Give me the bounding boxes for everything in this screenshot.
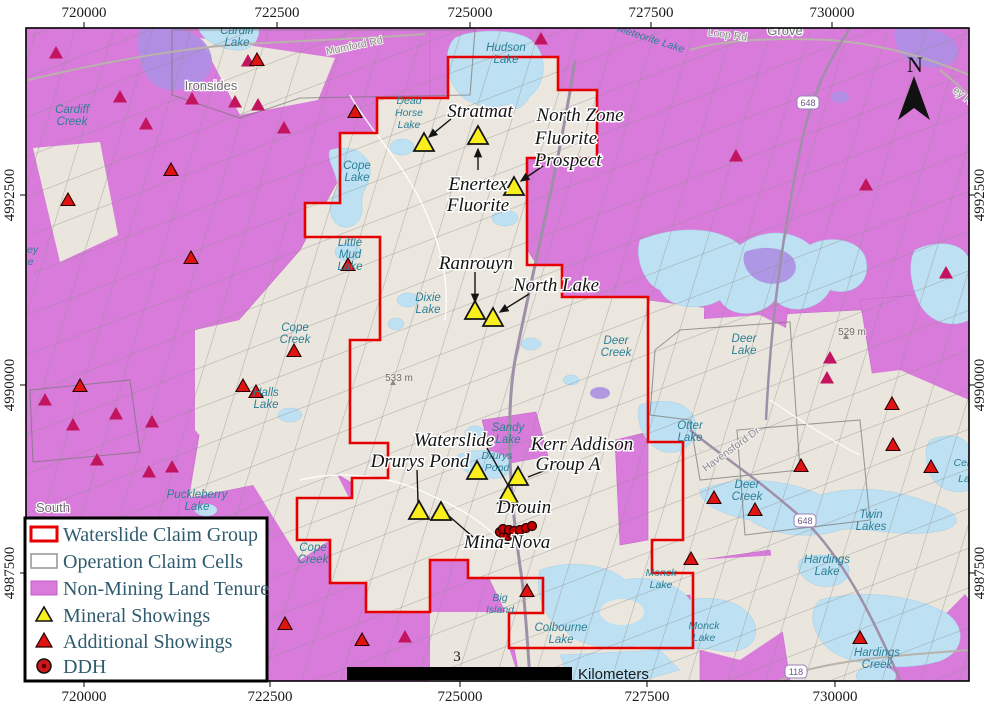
legend: Waterslide Claim Group Operation Claim C… xyxy=(25,518,269,681)
mina-nova-label: Mina-Nova xyxy=(463,532,551,553)
enertex-label: Enertex xyxy=(447,174,508,195)
axis-bottom-720000: 720000 xyxy=(62,689,107,705)
claim-map: 648 648 118 xyxy=(0,0,997,714)
kerr-addison-label: Kerr Addison xyxy=(530,434,634,455)
non-mining-swatch-icon xyxy=(31,581,57,595)
svg-text:Creek: Creek xyxy=(862,659,894,671)
hardings-creek-label: Hardings xyxy=(854,647,900,659)
svg-text:Lake: Lake xyxy=(416,304,441,316)
svg-text:Lake: Lake xyxy=(549,634,574,646)
cope-creek-label-2: Cope xyxy=(299,542,327,554)
svg-text:Fluorite: Fluorite xyxy=(534,128,597,149)
svg-text:Creek: Creek xyxy=(732,491,764,503)
svg-text:Lake: Lake xyxy=(496,434,521,446)
axis-bottom-730000: 730000 xyxy=(813,689,858,705)
halls-lake-label: Halls xyxy=(253,387,279,399)
shield-118-label: 118 xyxy=(789,667,803,677)
cardiff-creek-label: Cardiff xyxy=(55,104,91,116)
svg-text:Horse: Horse xyxy=(395,107,423,119)
sey-lake-partial-label: sey xyxy=(22,244,39,256)
drurys-pond-label: Drurys Pond xyxy=(370,451,470,472)
axis-left-4990000: 4990000 xyxy=(2,359,18,412)
svg-text:Prospect: Prospect xyxy=(534,150,603,171)
svg-text:Lake: Lake xyxy=(494,54,519,66)
big-island-label: Big xyxy=(492,592,507,604)
svg-text:Lake: Lake xyxy=(398,119,421,131)
svg-text:Creek: Creek xyxy=(601,347,633,359)
dead-horse-lake-label: Dead xyxy=(396,95,422,107)
svg-text:Lake: Lake xyxy=(693,632,716,644)
waterslide-label: Waterslide xyxy=(414,430,495,451)
shield-648-label-2: 648 xyxy=(797,516,812,526)
south-label: South xyxy=(36,500,70,515)
axis-left-4992500: 4992500 xyxy=(2,169,18,222)
axis-left-4987500: 4987500 xyxy=(2,547,18,600)
claim-cells-swatch-icon xyxy=(31,554,57,568)
north-lake-label: North Lake xyxy=(512,275,599,296)
hudson-lake-label: Hudson xyxy=(486,42,526,54)
svg-text:Group A: Group A xyxy=(536,454,601,475)
legend-item-non-mining: Non-Mining Land Tenure xyxy=(31,578,269,600)
svg-text:Lake: Lake xyxy=(225,37,250,49)
legend-item-additional-showings: Additional Showings xyxy=(36,631,233,653)
svg-text:Lake: Lake xyxy=(338,261,363,273)
axis-top-725000: 725000 xyxy=(448,5,493,21)
svg-text:Lake: Lake xyxy=(678,432,703,444)
ironsides-label: Ironsides xyxy=(185,78,238,93)
axis-right-4987500: 4987500 xyxy=(972,547,988,600)
legend-label-claim-group: Waterslide Claim Group xyxy=(63,524,258,546)
stratmat-label: Stratmat xyxy=(447,101,513,122)
axis-top-727500: 727500 xyxy=(629,5,674,21)
legend-item-mineral-showings: Mineral Showings xyxy=(36,605,210,627)
legend-label-claim-cells: Operation Claim Cells xyxy=(63,551,243,573)
cardiff-lake-label: Cardiff xyxy=(220,25,256,37)
drurys-pond-lake-label: Drurys xyxy=(482,450,514,462)
claim-group-swatch-icon xyxy=(31,527,57,541)
svg-text:Lake: Lake xyxy=(650,579,673,591)
sandy-lake-label: Sandy xyxy=(492,422,526,434)
cope-lake-label: Cope xyxy=(343,160,371,172)
svg-text:Lake: Lake xyxy=(345,172,370,184)
elevation-529: 529 m xyxy=(838,327,866,338)
map-page: 648 648 118 xyxy=(0,0,997,714)
cope-creek-label: Cope xyxy=(281,322,309,334)
little-mud-lake-label: Little xyxy=(338,237,362,249)
svg-text:Lake: Lake xyxy=(732,345,757,357)
otter-lake-label: Otter xyxy=(677,420,704,432)
big-island-land xyxy=(600,599,644,625)
svg-text:Creek: Creek xyxy=(57,116,89,128)
drouin-label: Drouin xyxy=(496,497,551,518)
axis-bottom-727500: 727500 xyxy=(625,689,670,705)
svg-text:Lake: Lake xyxy=(815,566,840,578)
svg-text:Lake: Lake xyxy=(254,399,279,411)
axis-top-720000: 720000 xyxy=(62,5,107,21)
legend-label-non-mining: Non-Mining Land Tenure xyxy=(63,578,269,600)
svg-text:Creek: Creek xyxy=(298,554,330,566)
grove-label: Grove xyxy=(767,23,802,38)
deer-creek-label-2: Deer xyxy=(735,479,761,491)
axis-right-4990000: 4990000 xyxy=(972,359,988,412)
elevation-533: 533 m xyxy=(385,373,413,384)
shield-648-label: 648 xyxy=(800,98,815,108)
dixie-lake-label: Dixie xyxy=(415,292,441,304)
svg-text:Creek: Creek xyxy=(280,334,312,346)
monck-lake-label-2: Monck xyxy=(689,620,721,632)
axis-bottom-722500: 722500 xyxy=(248,689,293,705)
north-zone-label: North Zone xyxy=(535,105,623,126)
ranrouyn-label: Ranrouyn xyxy=(438,253,513,274)
svg-text:Lake: Lake xyxy=(185,501,210,513)
svg-text:Mud: Mud xyxy=(339,249,362,261)
scale-distance-label: 3 xyxy=(453,649,461,665)
axis-top-730000: 730000 xyxy=(810,5,855,21)
hardings-lake-label: Hardings xyxy=(804,554,850,566)
svg-text:Island: Island xyxy=(486,604,515,616)
svg-text:Pond: Pond xyxy=(485,462,511,474)
north-arrow-label: N xyxy=(907,52,923,77)
deer-creek-label: Deer xyxy=(604,335,630,347)
legend-item-claim-cells: Operation Claim Cells xyxy=(31,551,243,573)
axis-bottom-725000: 725000 xyxy=(438,689,483,705)
shield-648-north: 648 xyxy=(797,96,819,109)
shield-118: 118 xyxy=(785,665,807,678)
axis-right-4992500: 4992500 xyxy=(972,169,988,222)
legend-label-mineral-showings: Mineral Showings xyxy=(63,605,210,627)
legend-label-additional-showings: Additional Showings xyxy=(63,631,233,653)
svg-text:ke: ke xyxy=(22,256,33,268)
twin-lakes-label: Twin xyxy=(859,509,882,521)
legend-item-claim-group: Waterslide Claim Group xyxy=(31,524,258,546)
monck-lake-label-1: Monck xyxy=(646,567,678,579)
svg-text:Fluorite: Fluorite xyxy=(446,195,509,216)
legend-label-ddh: DDH xyxy=(63,656,106,678)
deer-lake-label: Deer xyxy=(732,333,758,345)
shield-648-south: 648 xyxy=(794,514,816,527)
puckleberry-lake-label: Puckleberry xyxy=(167,489,229,501)
svg-text:Lakes: Lakes xyxy=(856,521,887,533)
axis-top-722500: 722500 xyxy=(255,5,300,21)
colbourne-lake-label: Colbourne xyxy=(534,622,587,634)
